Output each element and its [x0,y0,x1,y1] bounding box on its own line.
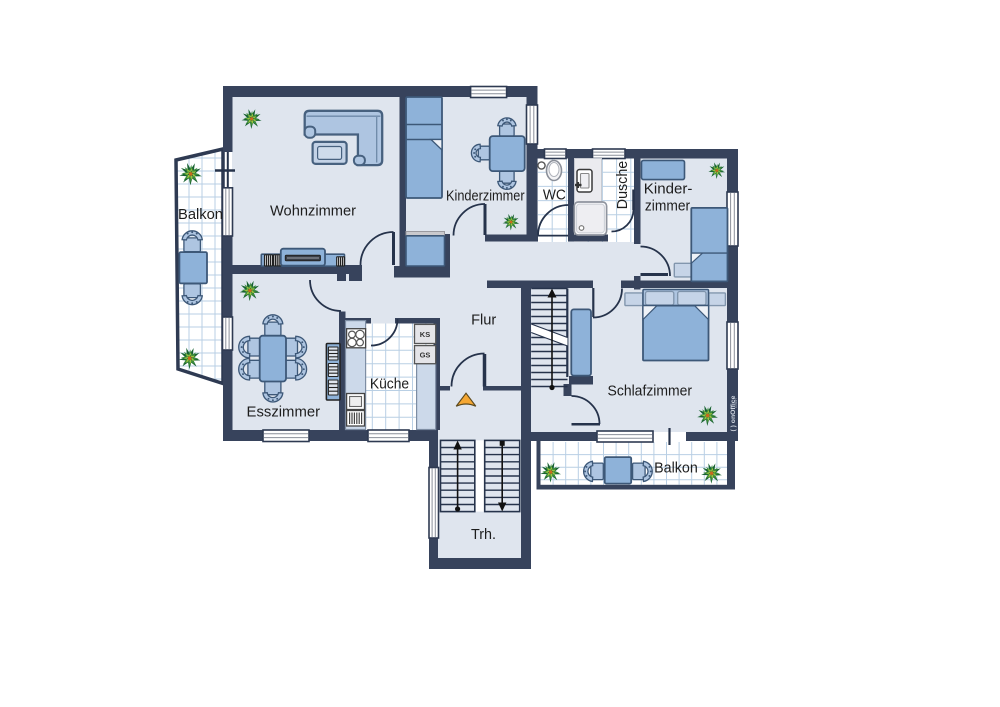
svg-text:Balkon: Balkon [178,206,223,223]
svg-text:Flur: Flur [471,312,496,329]
svg-text:Kinderzimmer: Kinderzimmer [446,187,525,204]
svg-text:Balkon: Balkon [654,459,698,476]
svg-text:Schlafzimmer: Schlafzimmer [608,383,693,400]
svg-text:GmbH: GmbH [734,398,738,408]
svg-text:Trh.: Trh. [471,526,496,543]
svg-text:Esszimmer: Esszimmer [247,404,321,421]
svg-text:Kinder-: Kinder- [644,181,693,198]
svg-text:GS: GS [420,351,431,360]
svg-text:WC: WC [543,187,566,204]
svg-text:Küche: Küche [370,376,409,393]
svg-text:KS: KS [420,330,430,339]
svg-text:zimmer: zimmer [645,198,690,215]
svg-text:Dusche: Dusche [614,161,631,209]
svg-text:Wohnzimmer: Wohnzimmer [270,203,356,220]
